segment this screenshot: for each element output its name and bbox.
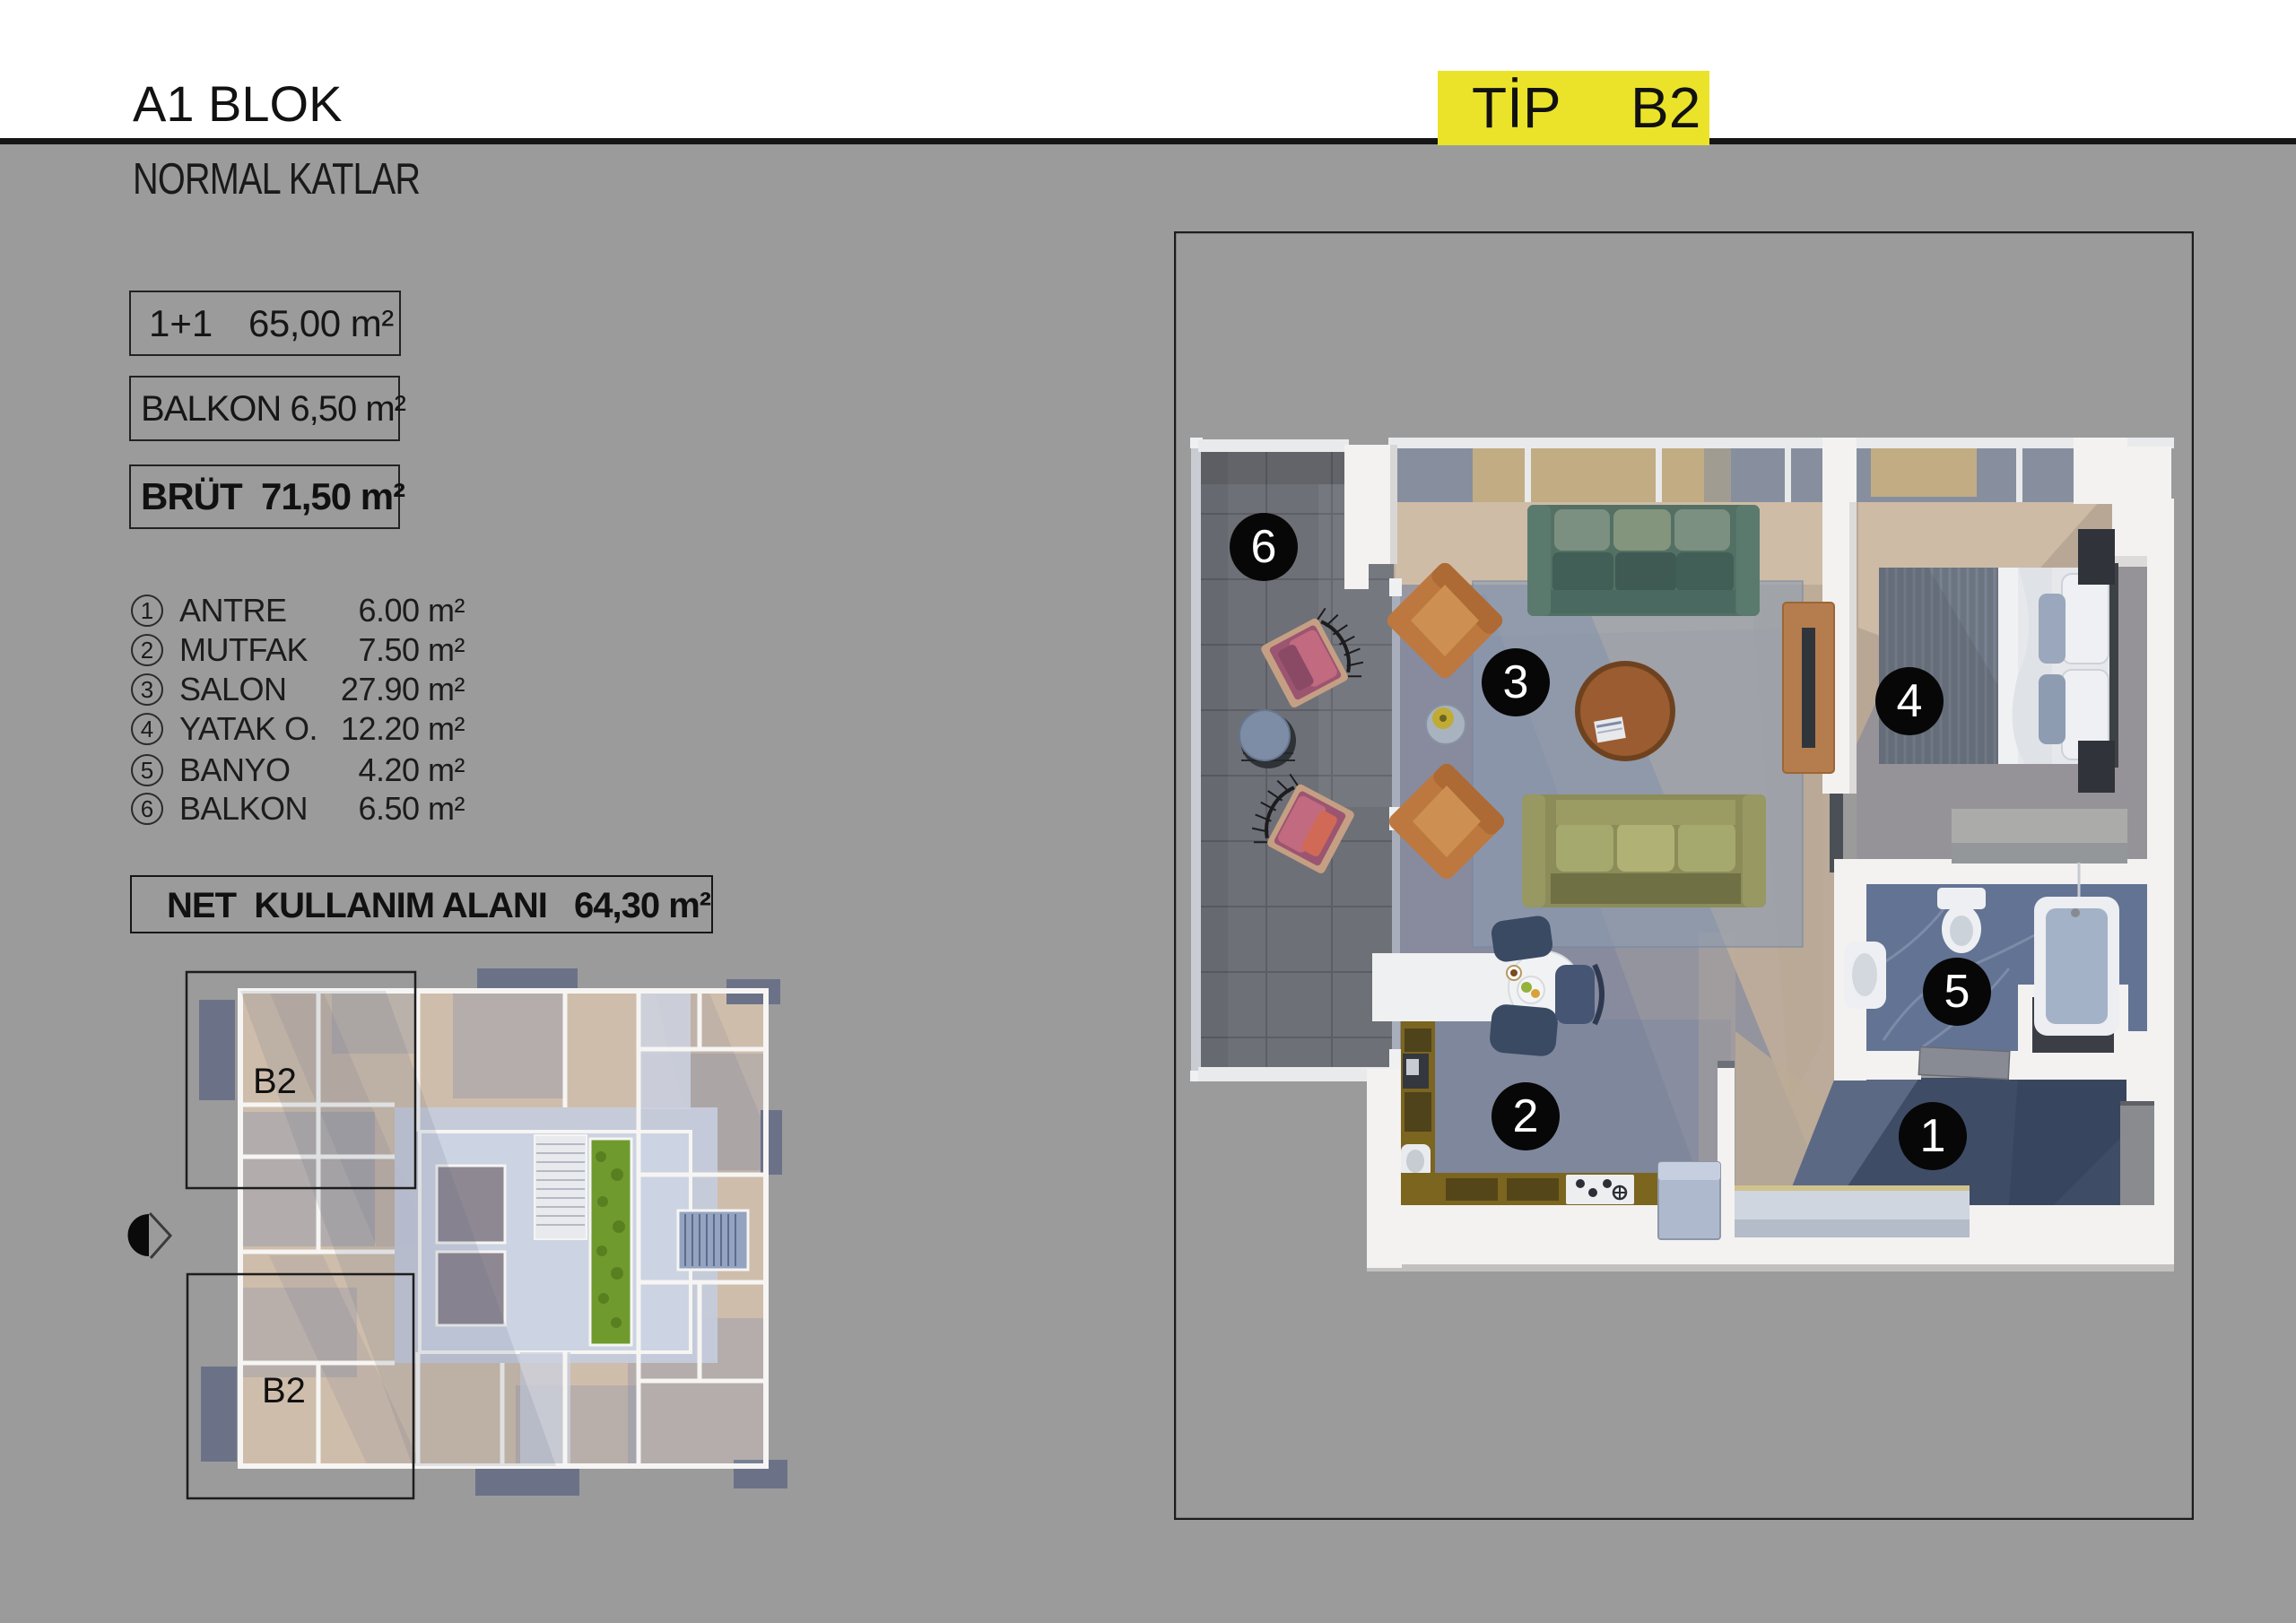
svg-text:B2: B2 <box>253 1062 297 1101</box>
svg-text:3: 3 <box>1503 656 1529 708</box>
svg-text:1: 1 <box>1920 1110 1946 1162</box>
svg-text:2: 2 <box>1513 1090 1539 1142</box>
svg-text:4: 4 <box>1897 675 1923 727</box>
svg-text:B2: B2 <box>262 1371 306 1410</box>
svg-text:5: 5 <box>1944 966 1970 1018</box>
svg-text:6: 6 <box>1251 521 1277 573</box>
